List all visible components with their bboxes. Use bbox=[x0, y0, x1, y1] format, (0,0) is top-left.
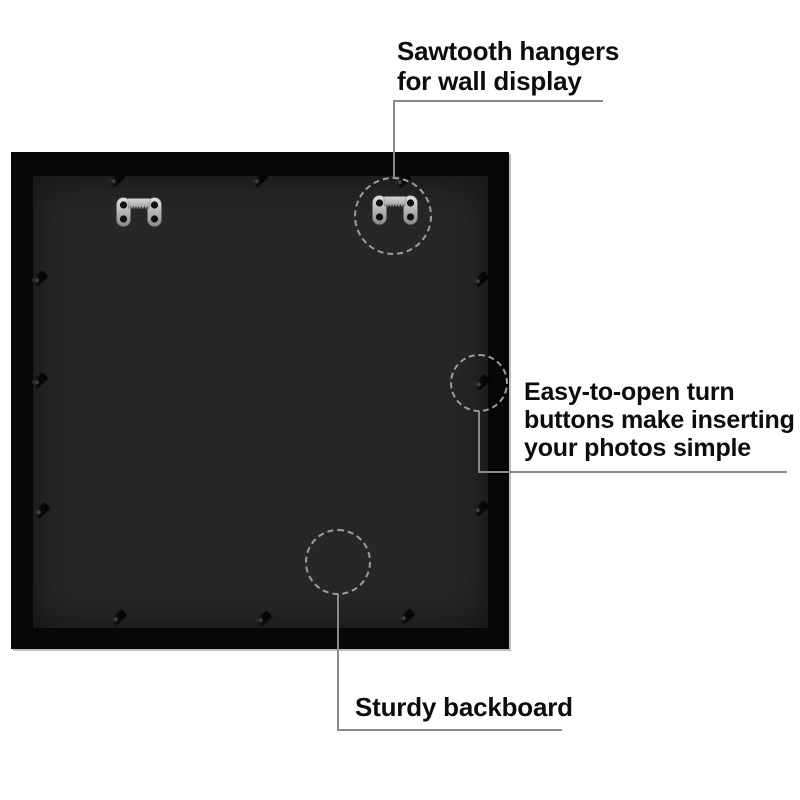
sawtooth-hanger-left bbox=[115, 196, 163, 228]
callout-line-turn-buttons-horizontal bbox=[478, 471, 787, 473]
callout-line-turn-buttons-vertical bbox=[478, 411, 480, 472]
highlight-circle-turn-button bbox=[450, 354, 508, 412]
frame bbox=[11, 152, 509, 649]
callout-label-sawtooth-hangers: Sawtooth hangers for wall display bbox=[397, 36, 619, 96]
callout-label-backboard: Sturdy backboard bbox=[355, 692, 573, 722]
callout-line-sawtooth-horizontal bbox=[393, 100, 603, 102]
highlight-circle-sawtooth-hanger bbox=[354, 177, 432, 255]
callout-line-backboard-horizontal bbox=[337, 729, 562, 731]
product-image: Sawtooth hangers for wall display Easy-t… bbox=[0, 0, 800, 800]
callout-line-backboard-vertical bbox=[337, 594, 339, 731]
callout-label-turn-buttons: Easy-to-open turn buttons make inserting… bbox=[524, 378, 795, 462]
callout-line-sawtooth-vertical bbox=[393, 100, 395, 178]
highlight-circle-backboard bbox=[305, 529, 371, 595]
